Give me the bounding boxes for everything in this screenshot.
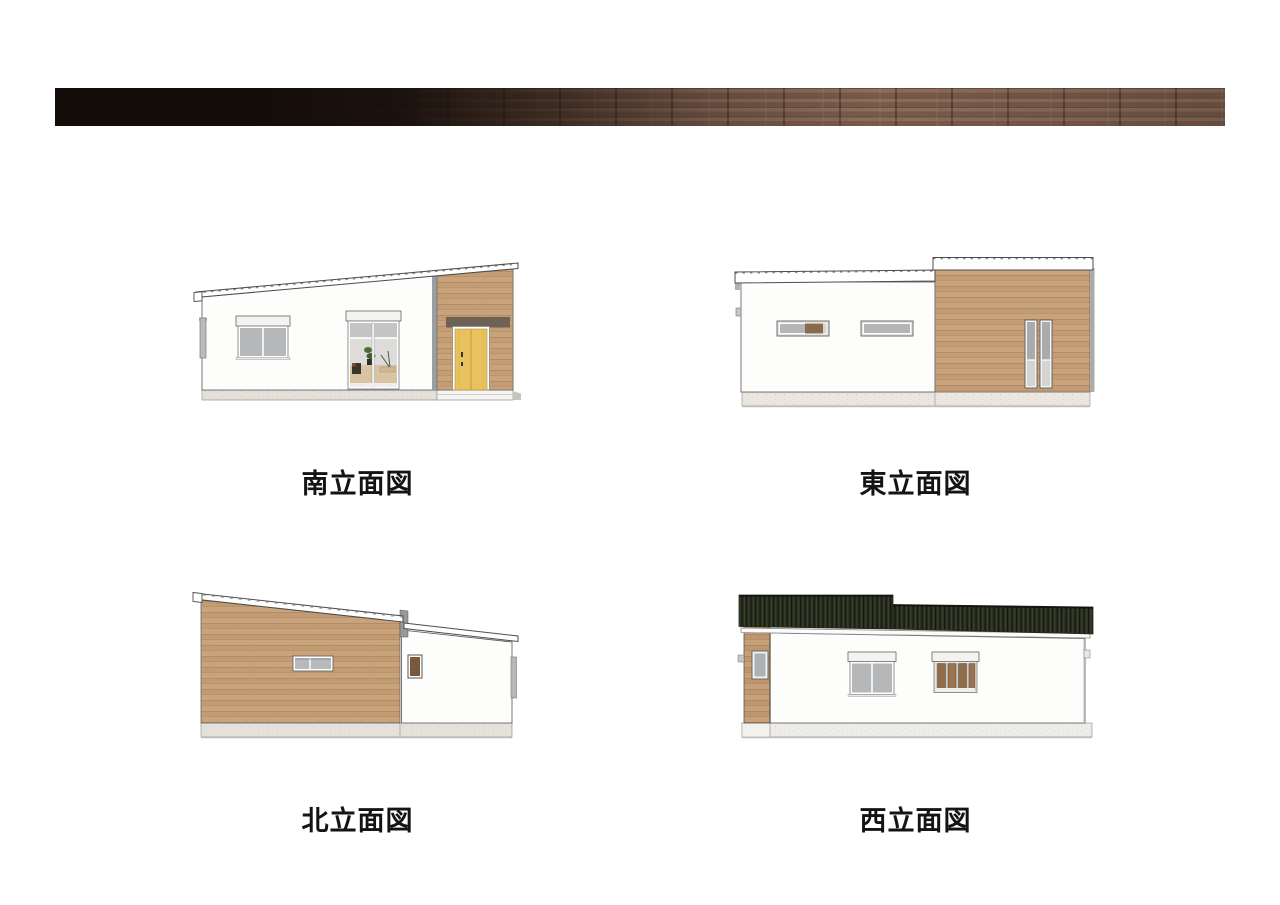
east-elevation-label: 東立面図 <box>728 462 1103 501</box>
east-wall-wood <box>935 268 1095 392</box>
west-wall-stub <box>738 655 744 662</box>
south-elevation-drawing <box>185 255 530 420</box>
north-downspout <box>511 657 517 698</box>
north-foundation <box>201 723 512 738</box>
west-small-window <box>752 651 768 679</box>
east-elevation-drawing <box>728 248 1103 413</box>
west-foundation <box>742 723 1092 738</box>
brick-banner-image <box>55 88 1225 126</box>
west-elevation-drawing <box>728 585 1103 755</box>
gutter-end-cap <box>194 292 202 302</box>
west-roof <box>739 595 1093 638</box>
east-wall-white <box>735 282 935 392</box>
west-elevation-label: 西立面図 <box>728 799 1103 838</box>
north-elevation-label: 北立面図 <box>185 799 530 838</box>
south-foundation <box>202 390 521 400</box>
west-wall-white <box>770 633 1085 723</box>
east-tall-window-2 <box>1040 320 1052 388</box>
north-slot-window <box>293 656 333 671</box>
east-slot-window-1 <box>777 321 829 336</box>
west-window-1 <box>848 652 896 697</box>
south-window-small <box>236 316 290 360</box>
west-vent <box>1084 650 1090 658</box>
south-door-lintel <box>446 317 510 328</box>
north-elevation-drawing <box>185 585 530 755</box>
south-downspout <box>200 318 207 358</box>
slot-window-wood-panel <box>805 324 823 334</box>
gutter-end-cap <box>193 593 202 603</box>
east-wall-stub <box>736 308 741 316</box>
east-right-shadow <box>1090 268 1095 392</box>
south-patio-door <box>346 311 401 389</box>
north-small-window <box>408 655 422 678</box>
east-fascia-low <box>735 270 935 283</box>
door-handle <box>461 352 463 357</box>
east-tall-window-1 <box>1025 320 1037 388</box>
east-fascia-raised <box>933 258 1093 271</box>
elevation-drawing-sheet: 南立面図 <box>0 0 1280 905</box>
east-slot-window-2 <box>861 321 913 336</box>
south-entry-door <box>453 327 490 391</box>
south-elevation-label: 南立面図 <box>185 462 530 501</box>
east-foundation <box>742 392 1090 407</box>
interior-plant <box>364 347 372 353</box>
west-window-2-shuttered <box>932 652 979 693</box>
